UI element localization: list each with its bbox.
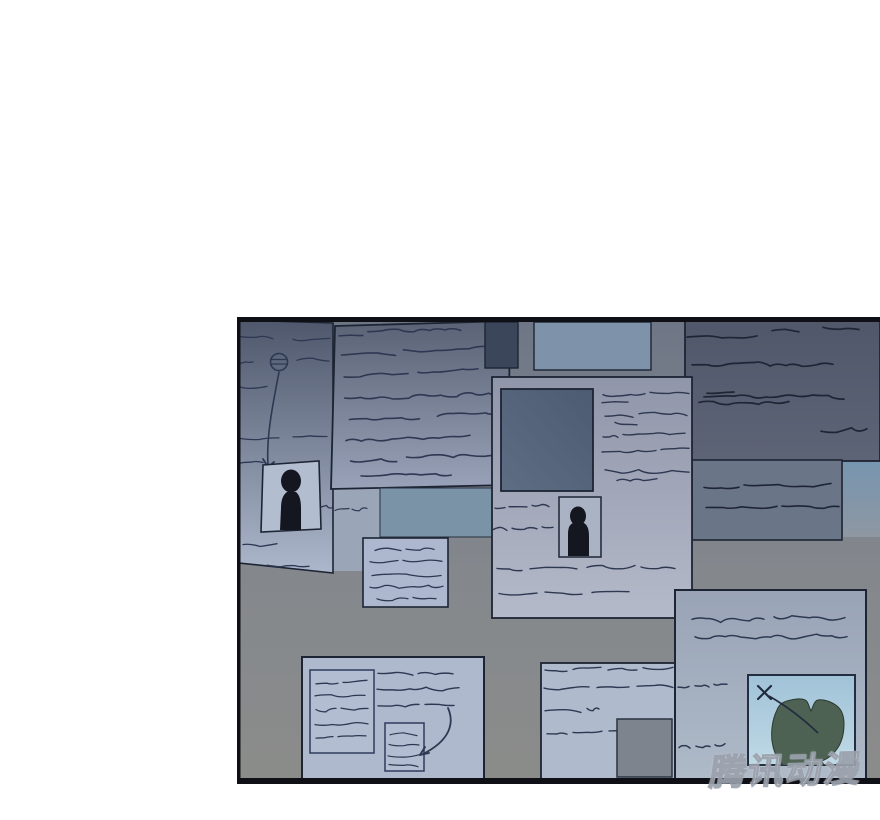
- dark-card: [485, 322, 518, 368]
- light-blue-card: [534, 322, 651, 370]
- central-poster: [492, 377, 692, 618]
- comic-page: 腾讯动漫: [0, 0, 880, 820]
- right-middle-note: [692, 460, 842, 540]
- scribble-line: [316, 683, 338, 684]
- tilted-report-sheet: [331, 321, 510, 489]
- scribble-line: [542, 527, 553, 528]
- gray-swatch: [617, 719, 672, 777]
- panel-border-top: [237, 317, 880, 322]
- dark-photo: [501, 389, 593, 491]
- blue-card: [380, 488, 493, 537]
- small-note: [363, 538, 448, 607]
- person-silhouette-left: [280, 470, 301, 531]
- wall-light-patch: [843, 462, 880, 537]
- left-pinned-document: [239, 320, 333, 573]
- evidence-wall-scene: [237, 317, 880, 784]
- scribble-line: [704, 487, 739, 488]
- scribble-line: [495, 508, 505, 509]
- scribble-line: [597, 687, 629, 688]
- bottom-left-paper: [302, 657, 484, 779]
- top-right-document: [685, 318, 880, 461]
- sticky-note: [385, 723, 424, 771]
- panel-border-left: [237, 317, 241, 784]
- tencent-comics-watermark: 腾讯动漫: [707, 748, 865, 795]
- bottom-middle-paper: [541, 663, 676, 779]
- evidence-wall-panel: [237, 317, 880, 784]
